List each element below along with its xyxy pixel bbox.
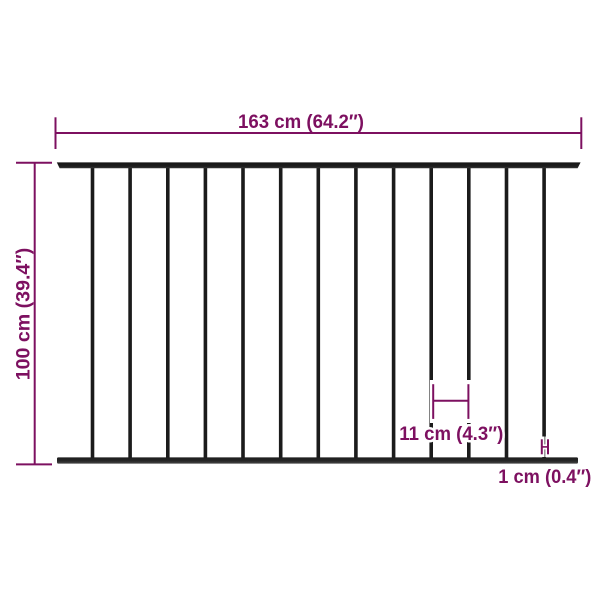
svg-text:100 cm (39.4″): 100 cm (39.4″) bbox=[14, 248, 35, 381]
svg-text:163 cm (64.2″): 163 cm (64.2″) bbox=[238, 112, 364, 133]
svg-text:11 cm (4.3″): 11 cm (4.3″) bbox=[399, 424, 503, 445]
svg-text:1 cm (0.4″): 1 cm (0.4″) bbox=[498, 467, 591, 488]
